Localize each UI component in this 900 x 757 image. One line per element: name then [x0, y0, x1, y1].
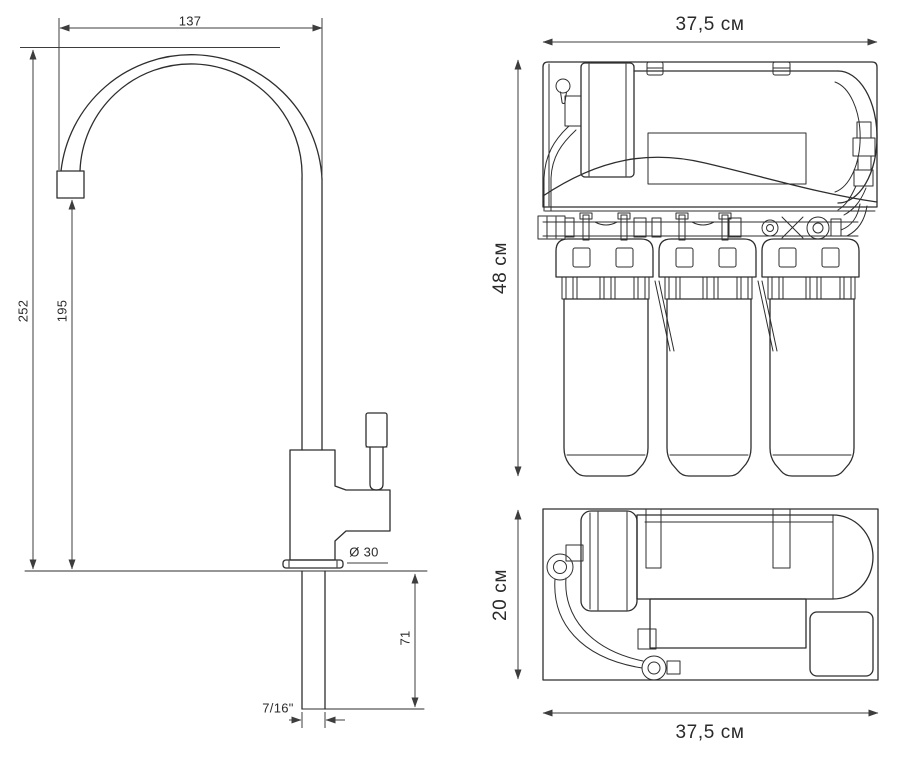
- lower-housing-top: [638, 599, 806, 649]
- fitting: [854, 170, 873, 186]
- fitting-outer: [642, 656, 666, 680]
- keyhole-slot: [556, 79, 570, 104]
- dimension-front-width: 37,5 см: [543, 14, 877, 42]
- fitting-inner: [648, 662, 660, 674]
- control-box: [810, 612, 873, 676]
- base-diameter-label: Ø 30: [349, 544, 378, 559]
- faucet-drawing: 137 252 195 71 7/16" Ø 30: [15, 13, 427, 728]
- pin-head: [618, 213, 630, 219]
- keyhole-circle: [556, 79, 570, 93]
- spout-height-label: 195: [54, 300, 69, 323]
- tube-line: [655, 281, 670, 351]
- collar: [652, 218, 661, 237]
- clamp-inner: [813, 223, 823, 233]
- filter-top-view-drawing: 20 см 37,5 см: [490, 509, 878, 743]
- collar: [565, 218, 574, 237]
- filter-cartridge-1: [556, 239, 653, 476]
- dimension-front-height: 48 см: [490, 60, 518, 476]
- pin-head: [676, 213, 688, 219]
- thread-label: 7/16": [262, 700, 294, 715]
- fitting: [858, 156, 871, 170]
- label-base-diameter: Ø 30: [347, 544, 388, 563]
- pump-head: [544, 63, 634, 211]
- housing-end-cap-inner: [835, 82, 860, 192]
- technical-drawing-page: 137 252 195 71 7/16" Ø 30: [0, 0, 900, 757]
- fitting-block: [667, 661, 680, 674]
- mounting-tab: [646, 509, 661, 568]
- dimension-top-width: 37,5 см: [543, 713, 878, 743]
- fitting: [853, 138, 875, 156]
- bracket-clips: [647, 62, 790, 75]
- cover-wave: [543, 157, 877, 202]
- aerator: [57, 171, 84, 198]
- membrane-body: [637, 515, 873, 599]
- lower-body-notch: [638, 629, 656, 649]
- front-width-label: 37,5 см: [675, 14, 744, 35]
- membrane-housing: [634, 71, 877, 203]
- housing-panel: [648, 133, 806, 184]
- faucet-spout: [57, 55, 322, 450]
- membrane-housing-top: [637, 515, 873, 599]
- collar: [634, 218, 646, 237]
- technical-drawing-canvas: 137 252 195 71 7/16" Ø 30: [0, 0, 900, 757]
- top-depth-label: 20 см: [490, 569, 511, 621]
- handle-stem: [370, 447, 383, 490]
- dimension-thread: 7/16": [262, 700, 345, 728]
- total-height-label: 252: [15, 300, 30, 323]
- pump-body: [581, 511, 637, 611]
- pin-head: [580, 213, 592, 219]
- lower-body: [650, 599, 806, 648]
- top-view-base: [543, 509, 878, 680]
- elbow-tube: [841, 204, 860, 230]
- flange-plate: [283, 560, 343, 568]
- faucet-flange: [283, 560, 343, 568]
- tube-line: [758, 281, 773, 351]
- collar: [729, 218, 741, 237]
- filter-front-view-drawing: 37,5 см 48 см: [490, 14, 877, 476]
- filter-cartridge-2: [659, 239, 756, 476]
- dimension-total-height: 252: [15, 50, 33, 569]
- faucet-handle: [366, 413, 387, 490]
- elbow-inner: [554, 561, 567, 574]
- manifold: [538, 204, 867, 240]
- handle-grip: [366, 413, 387, 447]
- bottom-fitting: [642, 656, 680, 680]
- rear-tubes: [655, 281, 777, 351]
- under-counter-label: 71: [397, 630, 412, 645]
- top-width-label: 37,5 см: [675, 722, 744, 743]
- elbow-outer: [547, 554, 573, 580]
- tube-curve: [566, 578, 643, 661]
- mounting-tab: [773, 509, 790, 568]
- filter-cartridge-3: [762, 239, 859, 476]
- spout-outer-arc: [61, 55, 322, 179]
- round-fitting-inner: [767, 225, 774, 232]
- pump-inlet-fitting: [565, 96, 581, 126]
- pump-top: [581, 511, 637, 611]
- mounting-plate: [543, 62, 877, 207]
- pump-tube: [544, 126, 569, 211]
- keyhole-slot-path: [561, 92, 567, 104]
- dimension-spout-width: 137: [59, 13, 322, 176]
- dimension-spout-height: 195: [54, 200, 72, 569]
- spout-inner-arc: [80, 64, 302, 179]
- front-height-label: 48 см: [490, 242, 511, 294]
- spout-width-label: 137: [179, 13, 202, 28]
- dimension-top-depth: 20 см: [490, 510, 518, 679]
- dimension-under-counter: 71: [397, 574, 415, 707]
- elbow-fitting-top: [547, 545, 643, 668]
